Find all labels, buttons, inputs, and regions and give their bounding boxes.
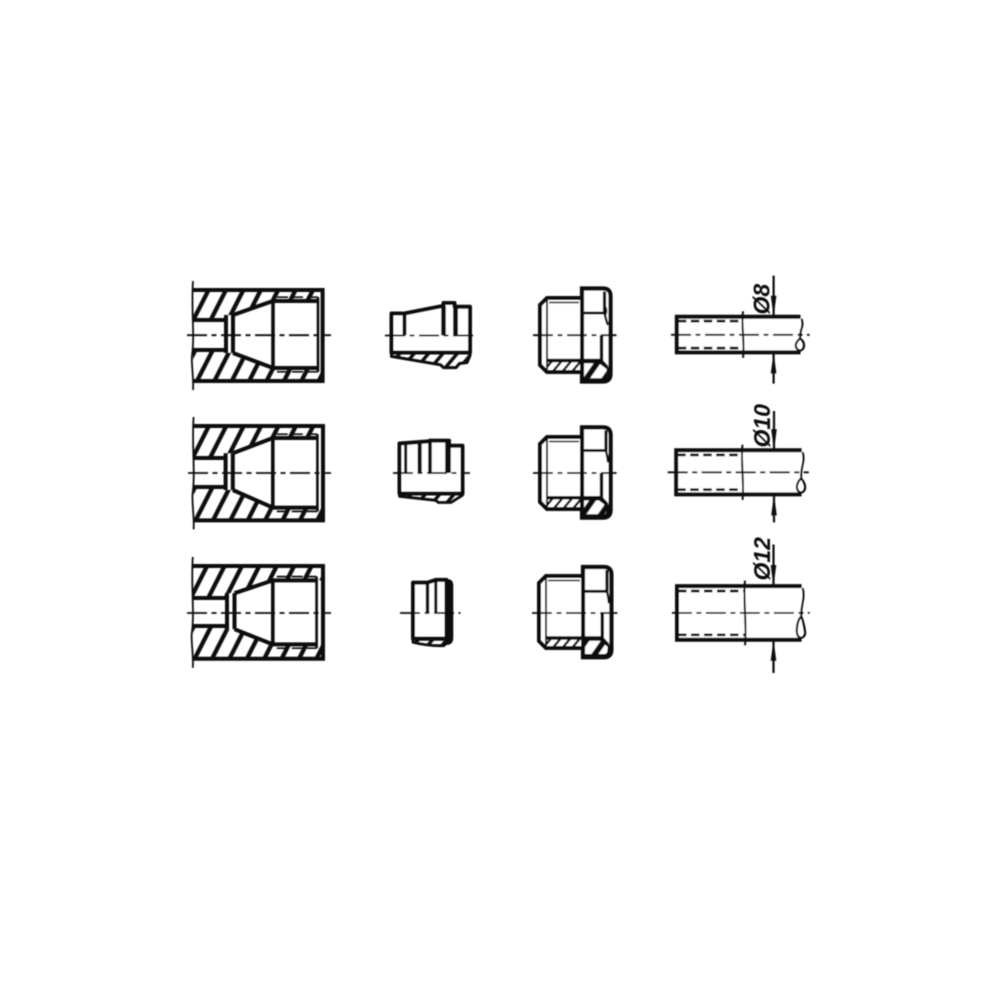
svg-text:Ø12: Ø12 [749,537,775,581]
svg-text:Ø10: Ø10 [749,404,775,448]
svg-text:Ø8: Ø8 [749,284,775,315]
